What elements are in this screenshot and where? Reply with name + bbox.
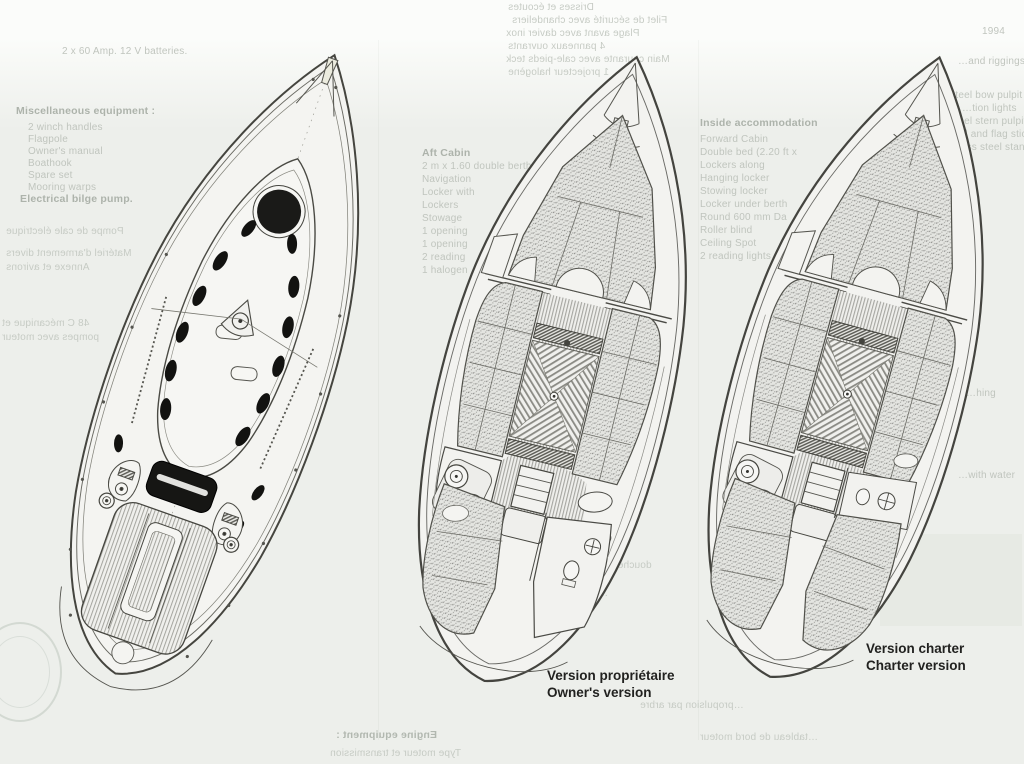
ghost-bleed-text: 2 x 60 Amp. 12 V batteries. bbox=[62, 46, 187, 57]
caption-line-english: Charter version bbox=[866, 658, 966, 675]
ghost-bleed-text: Miscellaneous equipment : bbox=[16, 106, 155, 118]
ghost-bleed-text: Boathook bbox=[28, 158, 72, 169]
ghost-bleed-text: …tableau de bord moteur bbox=[700, 732, 818, 743]
ghost-bleed-text: Filet de sécurité avec chandeliers bbox=[512, 15, 667, 26]
scanned-brochure-page: { "page": { "description": "Scanned sail… bbox=[0, 0, 1024, 764]
ghost-bleed-text: Drisses et écoutes bbox=[508, 2, 594, 13]
ghost-bleed-text: Matériel d'armement divers bbox=[6, 248, 131, 259]
ghost-bleed-text: Mooring warps bbox=[28, 182, 96, 193]
caption-line-english: Owner's version bbox=[547, 685, 675, 702]
ghost-bleed-text: Owner's manual bbox=[28, 146, 103, 157]
ghost-bleed-text: 48 C mécanique et bbox=[2, 318, 89, 329]
ghost-bleed-text: Electrical bilge pump. bbox=[20, 194, 133, 206]
ghost-bleed-text: Flagpole bbox=[28, 134, 68, 145]
ghost-bleed-text: Spare set bbox=[28, 170, 73, 181]
ghost-bleed-text: Annexe et avirons bbox=[6, 262, 89, 273]
ghost-bleed-text: 2 winch handles bbox=[28, 122, 103, 133]
caption-line-french: Version propriétaire bbox=[547, 668, 675, 685]
caption-line-french: Version charter bbox=[866, 641, 966, 658]
charter-version-caption: Version charter Charter version bbox=[866, 641, 966, 675]
ghost-bleed-text: Pompe de cale électrique bbox=[6, 226, 124, 237]
ghost-bleed-text: Engine equipment : bbox=[336, 730, 437, 742]
owner-version-caption: Version propriétaire Owner's version bbox=[547, 668, 675, 702]
ghost-bleed-text: 1994 bbox=[982, 26, 1005, 37]
ghost-bleed-text: Type moteur et transmission bbox=[330, 748, 461, 759]
